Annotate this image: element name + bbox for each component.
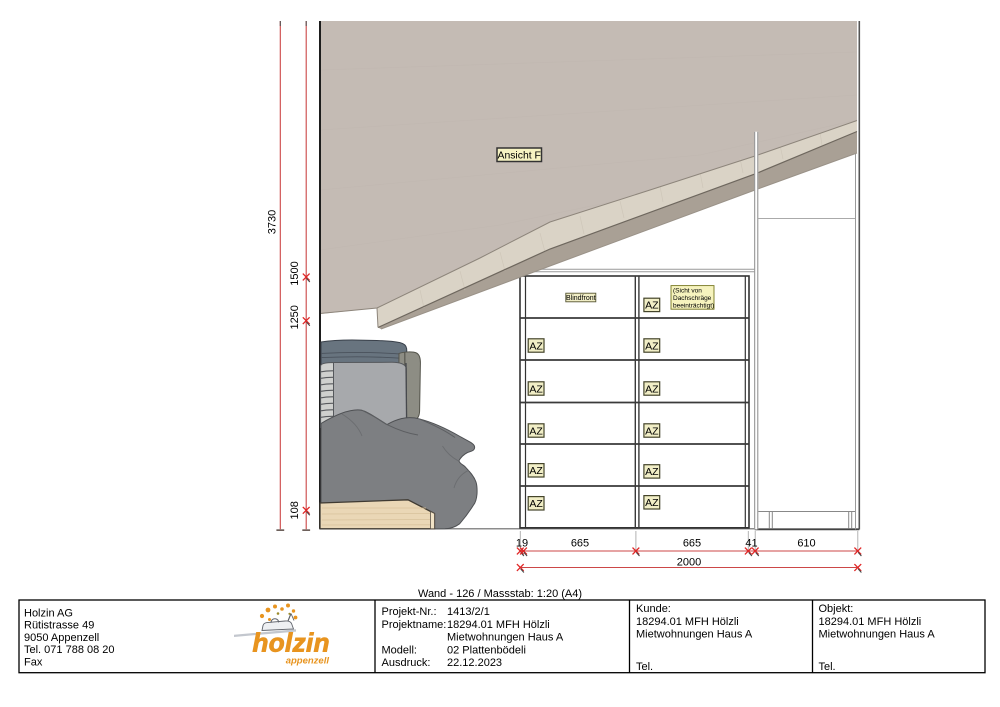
svg-text:Dachschräge: Dachschräge <box>673 295 712 302</box>
svg-text:Tel.: Tel. <box>819 661 836 673</box>
svg-text:665: 665 <box>571 538 589 550</box>
svg-text:Mietwohnungen Haus A: Mietwohnungen Haus A <box>447 632 564 644</box>
svg-text:9050 Appenzell: 9050 Appenzell <box>24 632 99 644</box>
svg-text:AZ: AZ <box>645 466 659 478</box>
svg-text:AZ: AZ <box>529 340 543 352</box>
svg-text:Fax: Fax <box>24 656 43 668</box>
svg-text:AZ: AZ <box>645 383 659 395</box>
svg-text:AZ: AZ <box>529 383 543 395</box>
svg-text:AZ: AZ <box>645 340 659 352</box>
svg-text:41: 41 <box>745 538 757 550</box>
svg-text:Objekt:: Objekt: <box>819 603 854 615</box>
svg-text:665: 665 <box>683 538 701 550</box>
svg-text:22.12.2023: 22.12.2023 <box>447 657 502 669</box>
svg-text:Rütistrasse 49: Rütistrasse 49 <box>24 620 94 632</box>
svg-text:Blindfront: Blindfront <box>566 295 596 302</box>
svg-text:2000: 2000 <box>677 557 701 569</box>
svg-text:AZ: AZ <box>529 425 543 437</box>
svg-text:holzin: holzin <box>253 628 330 658</box>
svg-text:19: 19 <box>516 538 528 550</box>
svg-text:Wand - 126 / Massstab: 1:20 (A: Wand - 126 / Massstab: 1:20 (A4) <box>418 588 582 600</box>
svg-text:Mietwohnungen Haus A: Mietwohnungen Haus A <box>636 629 753 641</box>
svg-text:Projekt-Nr.:: Projekt-Nr.: <box>382 606 437 618</box>
svg-text:Kunde:: Kunde: <box>636 603 671 615</box>
svg-text:18294.01 MFH Hölzli: 18294.01 MFH Hölzli <box>447 619 550 631</box>
svg-text:AZ: AZ <box>529 465 543 477</box>
svg-text:1500: 1500 <box>289 261 301 285</box>
svg-text:108: 108 <box>289 501 301 519</box>
svg-text:Mietwohnungen Haus A: Mietwohnungen Haus A <box>819 629 936 641</box>
svg-text:Holzin AG: Holzin AG <box>24 608 73 620</box>
svg-text:AZ: AZ <box>645 497 659 509</box>
svg-text:AZ: AZ <box>645 425 659 437</box>
svg-text:610: 610 <box>797 538 815 550</box>
svg-text:3730: 3730 <box>267 210 279 234</box>
svg-text:(Sicht von: (Sicht von <box>673 288 702 295</box>
svg-text:1250: 1250 <box>289 305 301 329</box>
svg-text:Ausdruck:: Ausdruck: <box>382 657 431 669</box>
svg-text:02 Plattenbödeli: 02 Plattenbödeli <box>447 644 526 656</box>
svg-text:AZ: AZ <box>645 300 659 312</box>
svg-text:Modell:: Modell: <box>382 644 417 656</box>
svg-text:AZ: AZ <box>529 498 543 510</box>
svg-text:Ansicht F: Ansicht F <box>498 151 541 162</box>
svg-text:Projektname:: Projektname: <box>382 619 447 631</box>
svg-text:appenzell: appenzell <box>286 656 330 667</box>
svg-text:beeinträchtigt): beeinträchtigt) <box>673 302 714 309</box>
svg-text:18294.01 MFH Hölzli: 18294.01 MFH Hölzli <box>636 616 739 628</box>
svg-text:Tel.: Tel. <box>636 661 653 673</box>
svg-text:Tel. 071 788 08 20: Tel. 071 788 08 20 <box>24 644 115 656</box>
svg-text:18294.01 MFH Hölzli: 18294.01 MFH Hölzli <box>819 616 922 628</box>
svg-text:1413/2/1: 1413/2/1 <box>447 606 490 618</box>
